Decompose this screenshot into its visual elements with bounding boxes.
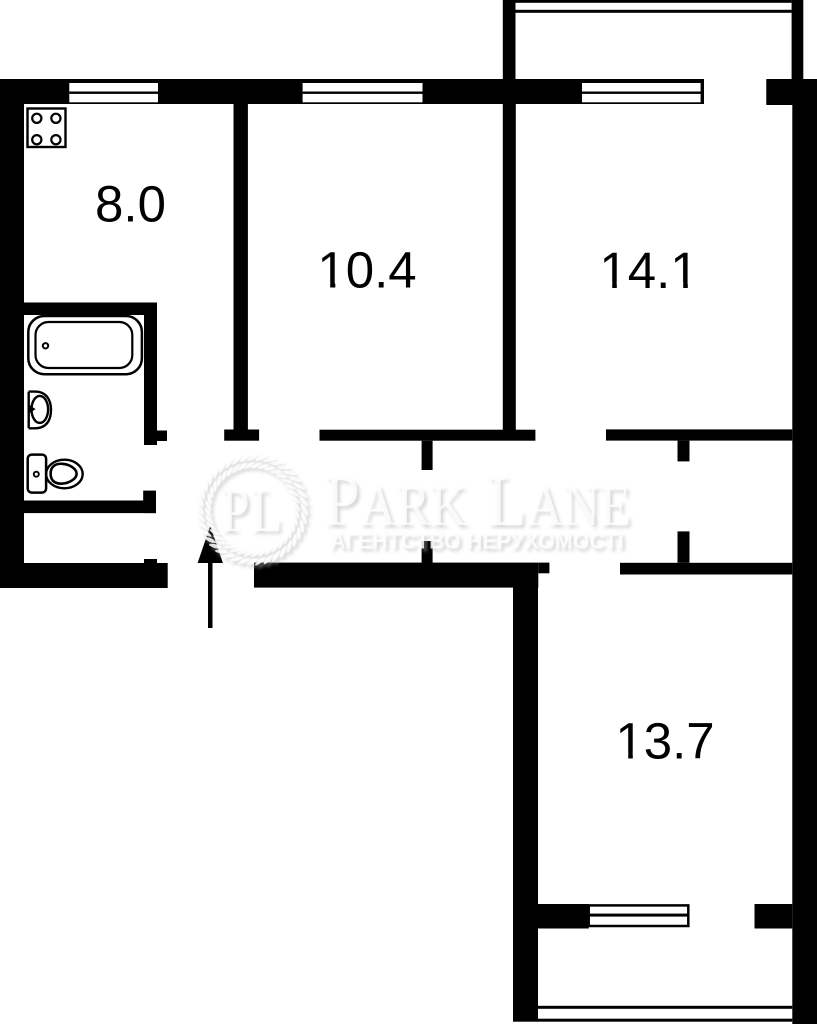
svg-text:14.1: 14.1 <box>599 242 698 299</box>
svg-text:10.4: 10.4 <box>317 242 416 299</box>
svg-text:13.7: 13.7 <box>615 713 714 770</box>
svg-text:8.0: 8.0 <box>95 176 166 233</box>
